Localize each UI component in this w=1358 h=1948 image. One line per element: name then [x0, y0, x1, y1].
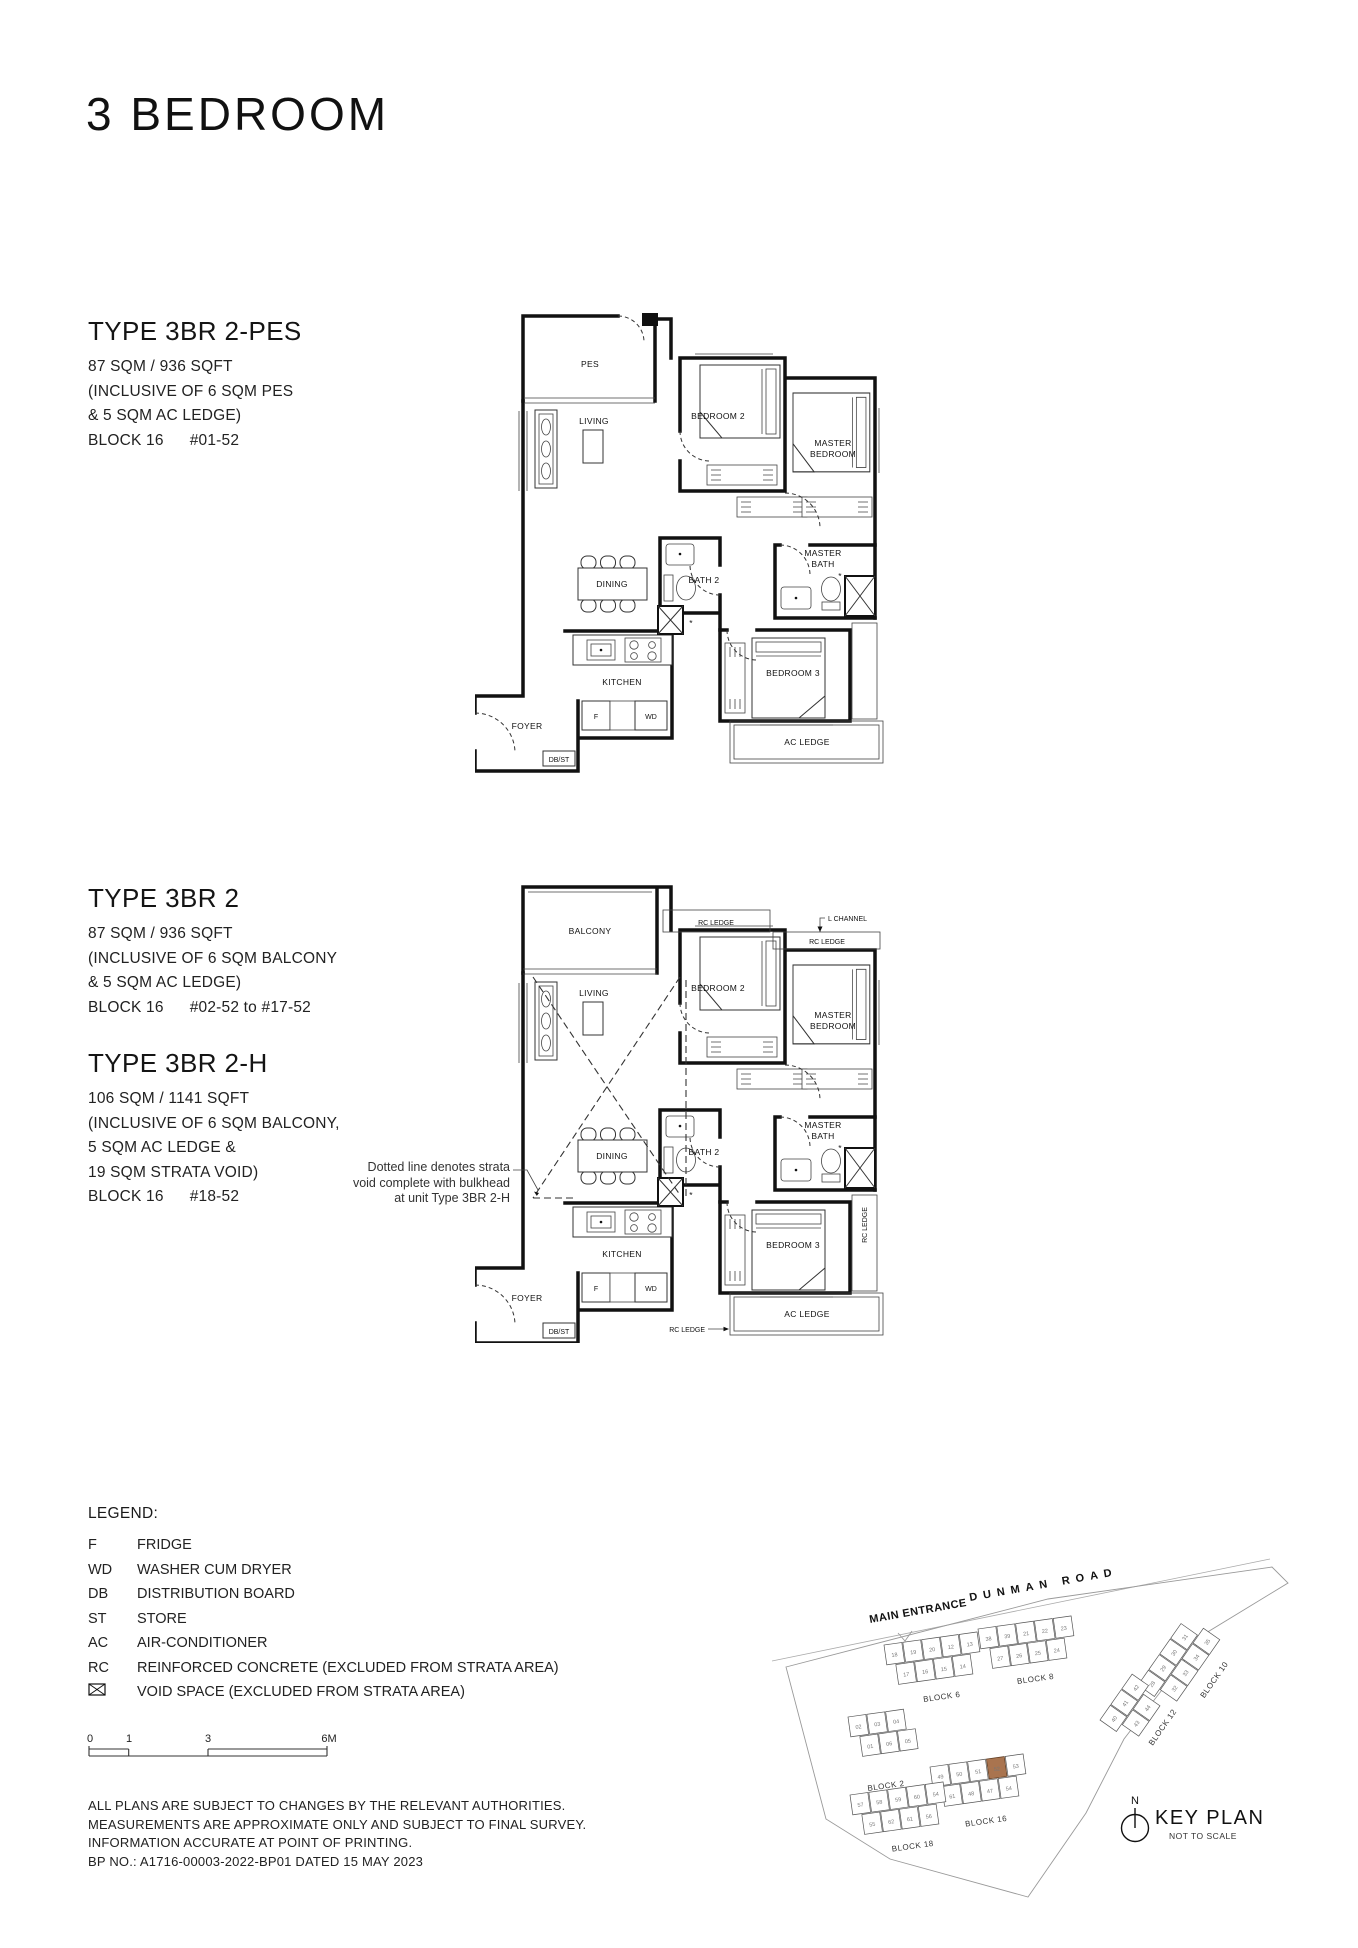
svg-text:38: 38 [985, 1636, 992, 1643]
room-label-balcony: BALCONY [569, 926, 612, 936]
room-label-kitchen: KITCHEN [602, 677, 641, 687]
room-label-living: LIVING [579, 988, 609, 998]
label-dbst: DB/ST [549, 1329, 570, 1336]
svg-text:24: 24 [1053, 1648, 1060, 1655]
plan2-block: BLOCK 16 [88, 999, 164, 1016]
svg-text:51: 51 [975, 1769, 982, 1776]
keyplan-subtitle: NOT TO SCALE [1169, 1831, 1237, 1841]
plan2-type-title: TYPE 3BR 2 [88, 883, 428, 914]
road-label: DUNMAN ROAD [968, 1566, 1118, 1604]
svg-text:50: 50 [956, 1772, 963, 1779]
label-fridge: F [594, 1286, 598, 1293]
void-space-icon [88, 1683, 106, 1696]
room-label-master-2: BEDROOM [810, 449, 856, 459]
scale-0: 0 [87, 1733, 93, 1745]
void-asterisk: * [838, 1143, 842, 1153]
plan2-area: 87 SQM / 936 SQFT [88, 922, 428, 947]
legend-row: VOID SPACE (EXCLUDED FROM STRATA AREA) [88, 1680, 568, 1705]
keyplan-cluster-block2: 020304010605BLOCK 2 [848, 1708, 923, 1794]
room-label-bath2: BATH 2 [689, 1147, 720, 1157]
room-label-masterbath-2: BATH [811, 559, 834, 569]
scale-3: 3 [205, 1733, 211, 1745]
keyplan-title: KEY PLAN [1155, 1807, 1264, 1829]
brochure-page: 3 BEDROOM TYPE 3BR 2-PES 87 SQM / 936 SQ… [0, 0, 1358, 1948]
room-label-master-2: BEDROOM [810, 1021, 856, 1031]
main-entrance-label: MAIN ENTRANCE [868, 1597, 967, 1626]
keyplan-cluster-block6: 181920121317161514BLOCK 6 [884, 1632, 986, 1708]
label-rc-ledge-right: RC LEDGE [862, 1207, 869, 1243]
note-leader-line [513, 1170, 539, 1196]
scale-6m: 6M [321, 1733, 336, 1745]
room-label-master-1: MASTER [814, 1010, 851, 1020]
svg-text:62: 62 [888, 1819, 895, 1826]
legend-row: WDWASHER CUM DRYER [88, 1558, 568, 1583]
legend: LEGEND: FFRIDGE WDWASHER CUM DRYER DBDIS… [88, 1505, 568, 1705]
void-asterisk: * [689, 1190, 693, 1200]
page-title: 3 BEDROOM [86, 87, 389, 141]
svg-text:23: 23 [1060, 1626, 1067, 1633]
svg-text:05: 05 [905, 1738, 912, 1745]
floorplan-3br-2-pes: PES LIVING BEDROOM 2 MASTER BEDROOM MAST… [475, 313, 887, 775]
svg-text:48: 48 [968, 1791, 975, 1798]
svg-text:06: 06 [886, 1741, 893, 1748]
svg-text:15: 15 [941, 1666, 948, 1673]
svg-text:56: 56 [925, 1814, 932, 1821]
room-label-foyer: FOYER [512, 1293, 543, 1303]
plan2h-type-title: TYPE 3BR 2-H [88, 1048, 428, 1079]
svg-text:53: 53 [1012, 1764, 1019, 1771]
svg-text:BLOCK 10: BLOCK 10 [1198, 1660, 1230, 1700]
svg-text:61: 61 [907, 1816, 914, 1823]
svg-text:47: 47 [987, 1788, 994, 1795]
label-rc-ledge-bottom: RC LEDGE [669, 1327, 705, 1334]
svg-text:57: 57 [857, 1802, 864, 1809]
room-label-masterbath-1: MASTER [804, 1120, 841, 1130]
label-dbst: DB/ST [549, 757, 570, 764]
label-fridge: F [594, 714, 598, 721]
label-wd: WD [645, 1286, 657, 1293]
svg-text:61: 61 [949, 1794, 956, 1801]
svg-text:17: 17 [903, 1672, 910, 1679]
svg-text:58: 58 [876, 1800, 883, 1807]
room-label-foyer: FOYER [512, 721, 543, 731]
room-label-master-1: MASTER [814, 438, 851, 448]
svg-text:26: 26 [1016, 1653, 1023, 1660]
room-label-bedroom3: BEDROOM 3 [766, 668, 820, 678]
plan2h-incl1: (INCLUSIVE OF 6 SQM BALCONY, [88, 1112, 428, 1137]
svg-text:60: 60 [914, 1794, 921, 1801]
room-label-bedroom3: BEDROOM 3 [766, 1240, 820, 1250]
svg-text:49: 49 [937, 1774, 944, 1781]
svg-text:03: 03 [874, 1722, 881, 1729]
room-label-masterbath-2: BATH [811, 1131, 834, 1141]
svg-text:27: 27 [997, 1656, 1004, 1663]
svg-text:13: 13 [966, 1642, 973, 1649]
svg-text:21: 21 [1023, 1631, 1030, 1638]
svg-text:25: 25 [1035, 1650, 1042, 1657]
legend-row: DBDISTRIBUTION BOARD [88, 1582, 568, 1607]
void-asterisk: * [689, 618, 693, 628]
svg-text:19: 19 [910, 1650, 917, 1657]
plan2h-block: BLOCK 16 [88, 1188, 164, 1205]
svg-text:55: 55 [869, 1822, 876, 1829]
plan2h-incl2: 5 SQM AC LEDGE & [88, 1136, 428, 1161]
svg-text:22: 22 [1042, 1628, 1049, 1635]
room-label-dining: DINING [596, 579, 628, 589]
legend-row: STSTORE [88, 1607, 568, 1632]
label-rc-ledge-top2: RC LEDGE [809, 939, 845, 946]
legend-title: LEGEND: [88, 1505, 568, 1523]
svg-text:16: 16 [922, 1669, 929, 1676]
room-label-acledge: AC LEDGE [784, 737, 829, 747]
plan2-block-line: BLOCK 16#02-52 to #17-52 [88, 996, 428, 1021]
scale-1: 1 [126, 1733, 132, 1745]
svg-text:18: 18 [891, 1652, 898, 1659]
pes-area [523, 313, 671, 403]
floorplan-3br-2: BALCONY RC LEDGE RC LEDGE L CHANNEL LIVI… [475, 885, 887, 1343]
svg-text:20: 20 [929, 1647, 936, 1654]
keyplan-cluster-block18: 575859605455626156BLOCK 18 [850, 1782, 952, 1858]
plan1-block: BLOCK 16 [88, 432, 164, 449]
keyplan-cluster-block16: 495051525361484754BLOCK 16 [930, 1754, 1032, 1832]
key-plan: MAIN ENTRANCE DUNMAN ROAD 18192012131716… [770, 1545, 1315, 1915]
svg-text:39: 39 [1004, 1634, 1011, 1641]
plan2-units: #02-52 to #17-52 [190, 999, 311, 1016]
svg-text:BLOCK 6: BLOCK 6 [923, 1690, 961, 1704]
svg-text:BLOCK 8: BLOCK 8 [1016, 1672, 1054, 1686]
svg-text:52: 52 [994, 1766, 1001, 1773]
room-label-masterbath-1: MASTER [804, 548, 841, 558]
plan1-type-title: TYPE 3BR 2-PES [88, 316, 428, 347]
disclaimer-line4: BP NO.: A1716-00003-2022-BP01 DATED 15 M… [88, 1853, 608, 1872]
label-wd: WD [645, 714, 657, 721]
svg-text:01: 01 [867, 1744, 874, 1751]
label-rc-ledge-top: RC LEDGE [698, 920, 734, 927]
plan2-info: TYPE 3BR 2 87 SQM / 936 SQFT (INCLUSIVE … [88, 883, 428, 1020]
north-label: N [1131, 1795, 1139, 1807]
plan1-area: 87 SQM / 936 SQFT [88, 355, 428, 380]
disclaimer: ALL PLANS ARE SUBJECT TO CHANGES BY THE … [88, 1797, 608, 1871]
plan1-incl1: (INCLUSIVE OF 6 SQM PES [88, 380, 428, 405]
room-label-kitchen: KITCHEN [602, 1249, 641, 1259]
legend-row: RCREINFORCED CONCRETE (EXCLUDED FROM STR… [88, 1656, 568, 1681]
plan2h-units: #18-52 [190, 1188, 239, 1205]
disclaimer-line3: INFORMATION ACCURATE AT POINT OF PRINTIN… [88, 1834, 608, 1853]
svg-text:BLOCK 18: BLOCK 18 [891, 1839, 934, 1854]
disclaimer-line1: ALL PLANS ARE SUBJECT TO CHANGES BY THE … [88, 1797, 608, 1816]
room-label-bedroom2: BEDROOM 2 [691, 411, 745, 421]
plan2h-area: 106 SQM / 1141 SQFT [88, 1087, 428, 1112]
keyplan-cluster-block8: 383921222327262524BLOCK 8 [978, 1616, 1080, 1690]
disclaimer-line2: MEASUREMENTS ARE APPROXIMATE ONLY AND SU… [88, 1816, 608, 1835]
room-label-acledge: AC LEDGE [784, 1309, 829, 1319]
room-label-pes: PES [581, 359, 599, 369]
legend-row: FFRIDGE [88, 1533, 568, 1558]
plan1-units: #01-52 [190, 432, 239, 449]
void-asterisk: * [838, 571, 842, 581]
rc-ledge-pointer [708, 1327, 729, 1331]
svg-text:04: 04 [893, 1719, 900, 1726]
room-label-bath2: BATH 2 [689, 575, 720, 585]
svg-text:BLOCK 16: BLOCK 16 [965, 1814, 1008, 1829]
plan2-incl1: (INCLUSIVE OF 6 SQM BALCONY [88, 947, 428, 972]
svg-text:54: 54 [932, 1792, 939, 1799]
svg-text:59: 59 [895, 1797, 902, 1804]
plan1-info: TYPE 3BR 2-PES 87 SQM / 936 SQFT (INCLUS… [88, 316, 428, 453]
legend-row: ACAIR-CONDITIONER [88, 1631, 568, 1656]
plan1-incl2: & 5 SQM AC LEDGE) [88, 404, 428, 429]
room-label-living: LIVING [579, 416, 609, 426]
plan1-block-line: BLOCK 16#01-52 [88, 429, 428, 454]
room-label-dining: DINING [596, 1151, 628, 1161]
room-label-bedroom2: BEDROOM 2 [691, 983, 745, 993]
scale-bar: 0 1 3 6M [86, 1731, 346, 1763]
svg-text:12: 12 [948, 1644, 955, 1651]
svg-text:54: 54 [1005, 1786, 1012, 1793]
svg-text:14: 14 [959, 1664, 966, 1671]
north-arrow-icon: N [1122, 1795, 1149, 1842]
label-l-channel: L CHANNEL [828, 916, 867, 923]
svg-text:02: 02 [855, 1724, 862, 1731]
plan2-incl2: & 5 SQM AC LEDGE) [88, 971, 428, 996]
